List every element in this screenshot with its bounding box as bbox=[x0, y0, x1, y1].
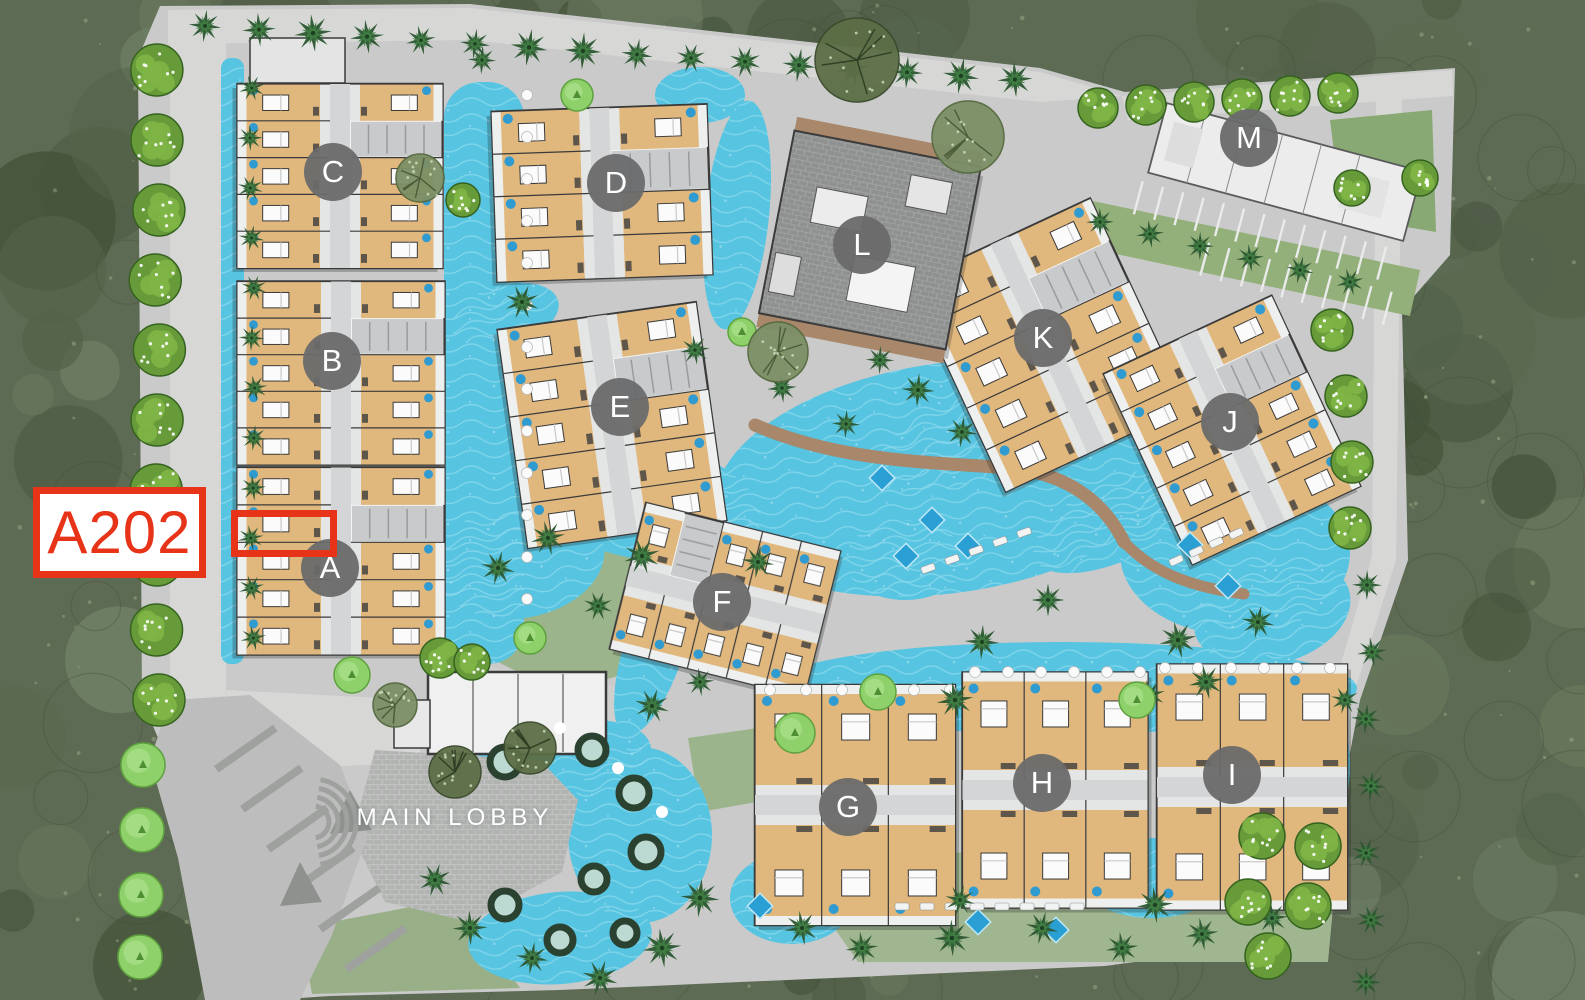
building-marker-l[interactable]: L bbox=[833, 216, 891, 274]
building-marker-h[interactable]: H bbox=[1013, 754, 1071, 812]
site-plan-map: ABCDEFGHIJKLM MAIN LOBBY A202 bbox=[0, 0, 1585, 1000]
building-marker-b[interactable]: B bbox=[303, 332, 361, 390]
building-marker-f[interactable]: F bbox=[693, 573, 751, 631]
building-marker-g[interactable]: G bbox=[819, 778, 877, 836]
building-marker-j[interactable]: J bbox=[1201, 393, 1259, 451]
main-lobby-label: MAIN LOBBY bbox=[357, 804, 554, 832]
building-marker-k[interactable]: K bbox=[1014, 309, 1072, 367]
selected-unit-label: A202 bbox=[47, 503, 191, 563]
building-marker-e[interactable]: E bbox=[591, 378, 649, 436]
site-plan-graphics bbox=[0, 0, 1585, 1000]
selected-unit-highlight bbox=[231, 510, 337, 557]
selected-unit-callout: A202 bbox=[33, 487, 206, 578]
building-marker-i[interactable]: I bbox=[1203, 746, 1261, 804]
building-marker-c[interactable]: C bbox=[304, 143, 362, 201]
building-marker-d[interactable]: D bbox=[587, 154, 645, 212]
building-marker-m[interactable]: M bbox=[1220, 109, 1278, 167]
